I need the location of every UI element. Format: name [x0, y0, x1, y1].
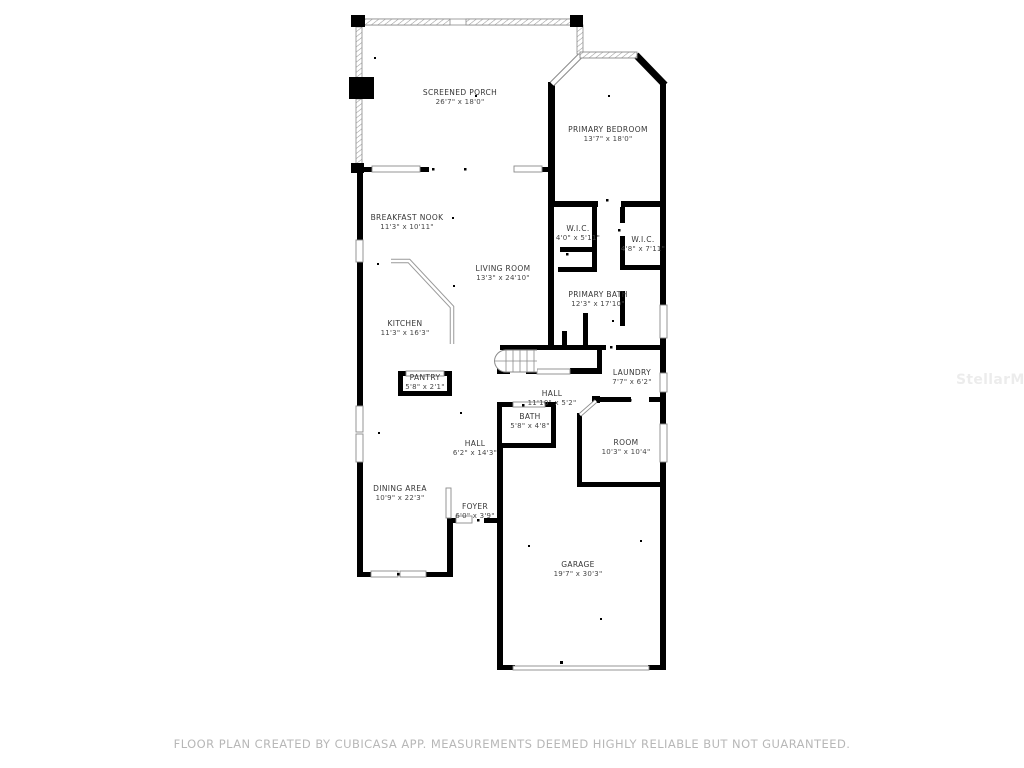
floor-plan-drawing [0, 0, 1024, 768]
angled-walls [552, 55, 665, 415]
stellar-mls-watermark: StellarMLS [956, 372, 1024, 388]
footer-disclaimer: FLOOR PLAN CREATED BY CUBICASA APP. MEAS… [174, 737, 851, 751]
kitchen-counter-icon [391, 261, 452, 344]
stairs-icon [495, 350, 538, 372]
floor-plan-page: SCREENED PORCH 26'7" x 18'0" PRIMARY BED… [0, 0, 1024, 768]
